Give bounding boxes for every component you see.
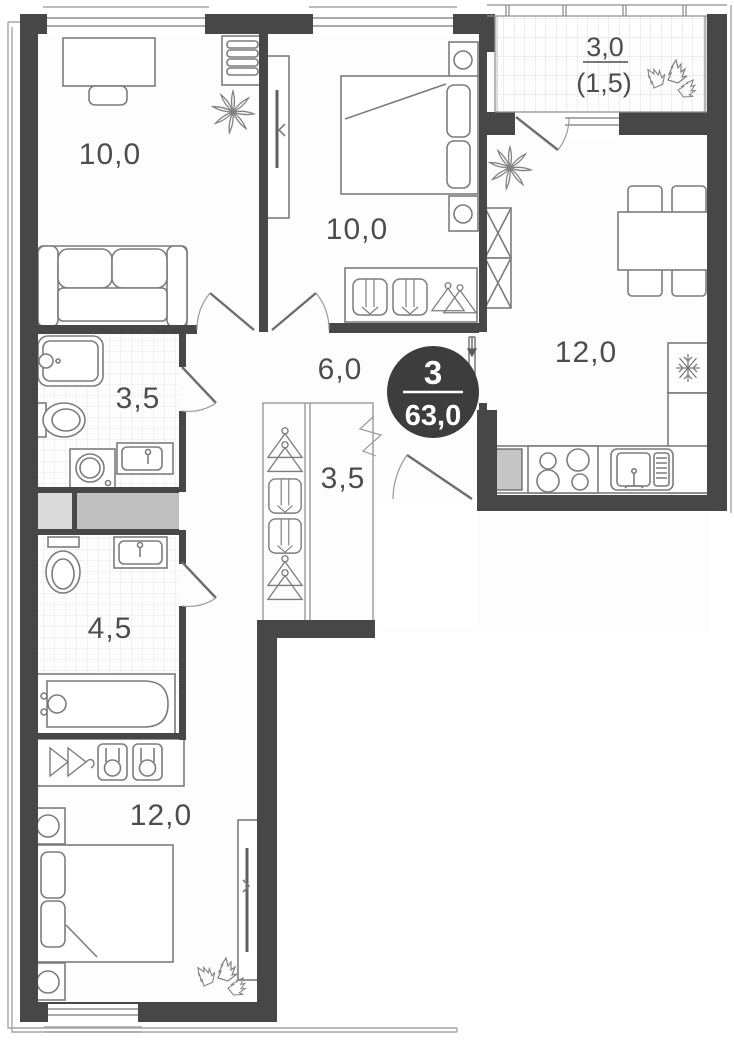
- snowflake-icon: [676, 354, 700, 382]
- room-area-label: 4,5: [88, 612, 133, 645]
- chair: [672, 268, 706, 296]
- duct-shaft: [33, 492, 179, 530]
- chair: [628, 186, 662, 214]
- washing-machine: [70, 449, 115, 488]
- toilet: [46, 537, 80, 593]
- room-area-label: 3,5: [321, 462, 366, 495]
- window-office: [43, 7, 209, 36]
- room-area-label: 10,0: [326, 213, 388, 246]
- kitchen-counter: [493, 446, 709, 493]
- wardrobe-tall: [238, 820, 258, 980]
- counter-shaft: [496, 449, 522, 490]
- double-bed: [35, 845, 173, 962]
- room-area-label: 6,0: [318, 353, 363, 386]
- stove: [528, 446, 598, 493]
- toilet: [35, 403, 85, 437]
- room-area-label: 12,0: [130, 799, 192, 832]
- vanity-sink: [114, 537, 167, 568]
- sofa: [38, 246, 187, 327]
- double-bed: [341, 76, 478, 194]
- laundry-niche: [33, 739, 184, 786]
- exterior-notch: [377, 505, 477, 625]
- dining-table: [618, 212, 710, 270]
- room-area-label: 3,5: [116, 382, 161, 415]
- shaft-left: [33, 492, 73, 530]
- shelf-unit: [222, 36, 263, 85]
- storage-box-icon: [353, 279, 387, 315]
- chair: [672, 186, 706, 214]
- badge-total-area: 63,0: [405, 400, 461, 432]
- washer-icon: [98, 744, 127, 780]
- vanity-sink: [117, 443, 173, 474]
- window-bedroom-top: [309, 7, 457, 36]
- room-area-label: 3,0: [586, 32, 624, 62]
- shower-sink: [38, 336, 103, 386]
- fridge: [668, 343, 709, 393]
- desk: [63, 38, 155, 86]
- vent-shaft: [485, 208, 511, 308]
- washer-icon: [133, 744, 162, 780]
- kitchen-sink: [611, 449, 673, 490]
- floor-plan: 10,0 10,0 3,0 (1,5) 12,0 6,0 3,5 3,5 4,5…: [0, 0, 734, 1040]
- bathtub: [35, 674, 175, 734]
- apartment-badge: 3 63,0: [387, 346, 479, 438]
- chair: [628, 268, 662, 296]
- storage-box-icon: [269, 519, 301, 553]
- room-area-label: (1,5): [576, 68, 632, 98]
- room-area-label: 10,0: [79, 138, 141, 171]
- storage-box-icon: [393, 279, 427, 315]
- wardrobe-tall: [266, 56, 289, 218]
- dresser-row: [345, 268, 477, 322]
- storage-box-icon: [269, 479, 301, 513]
- shaft-right: [77, 492, 179, 530]
- window-balcony-kitchen: [565, 110, 619, 137]
- badge-rooms-count: 3: [424, 354, 442, 391]
- room-area-label: 12,0: [555, 336, 617, 369]
- desk-chair: [89, 86, 127, 105]
